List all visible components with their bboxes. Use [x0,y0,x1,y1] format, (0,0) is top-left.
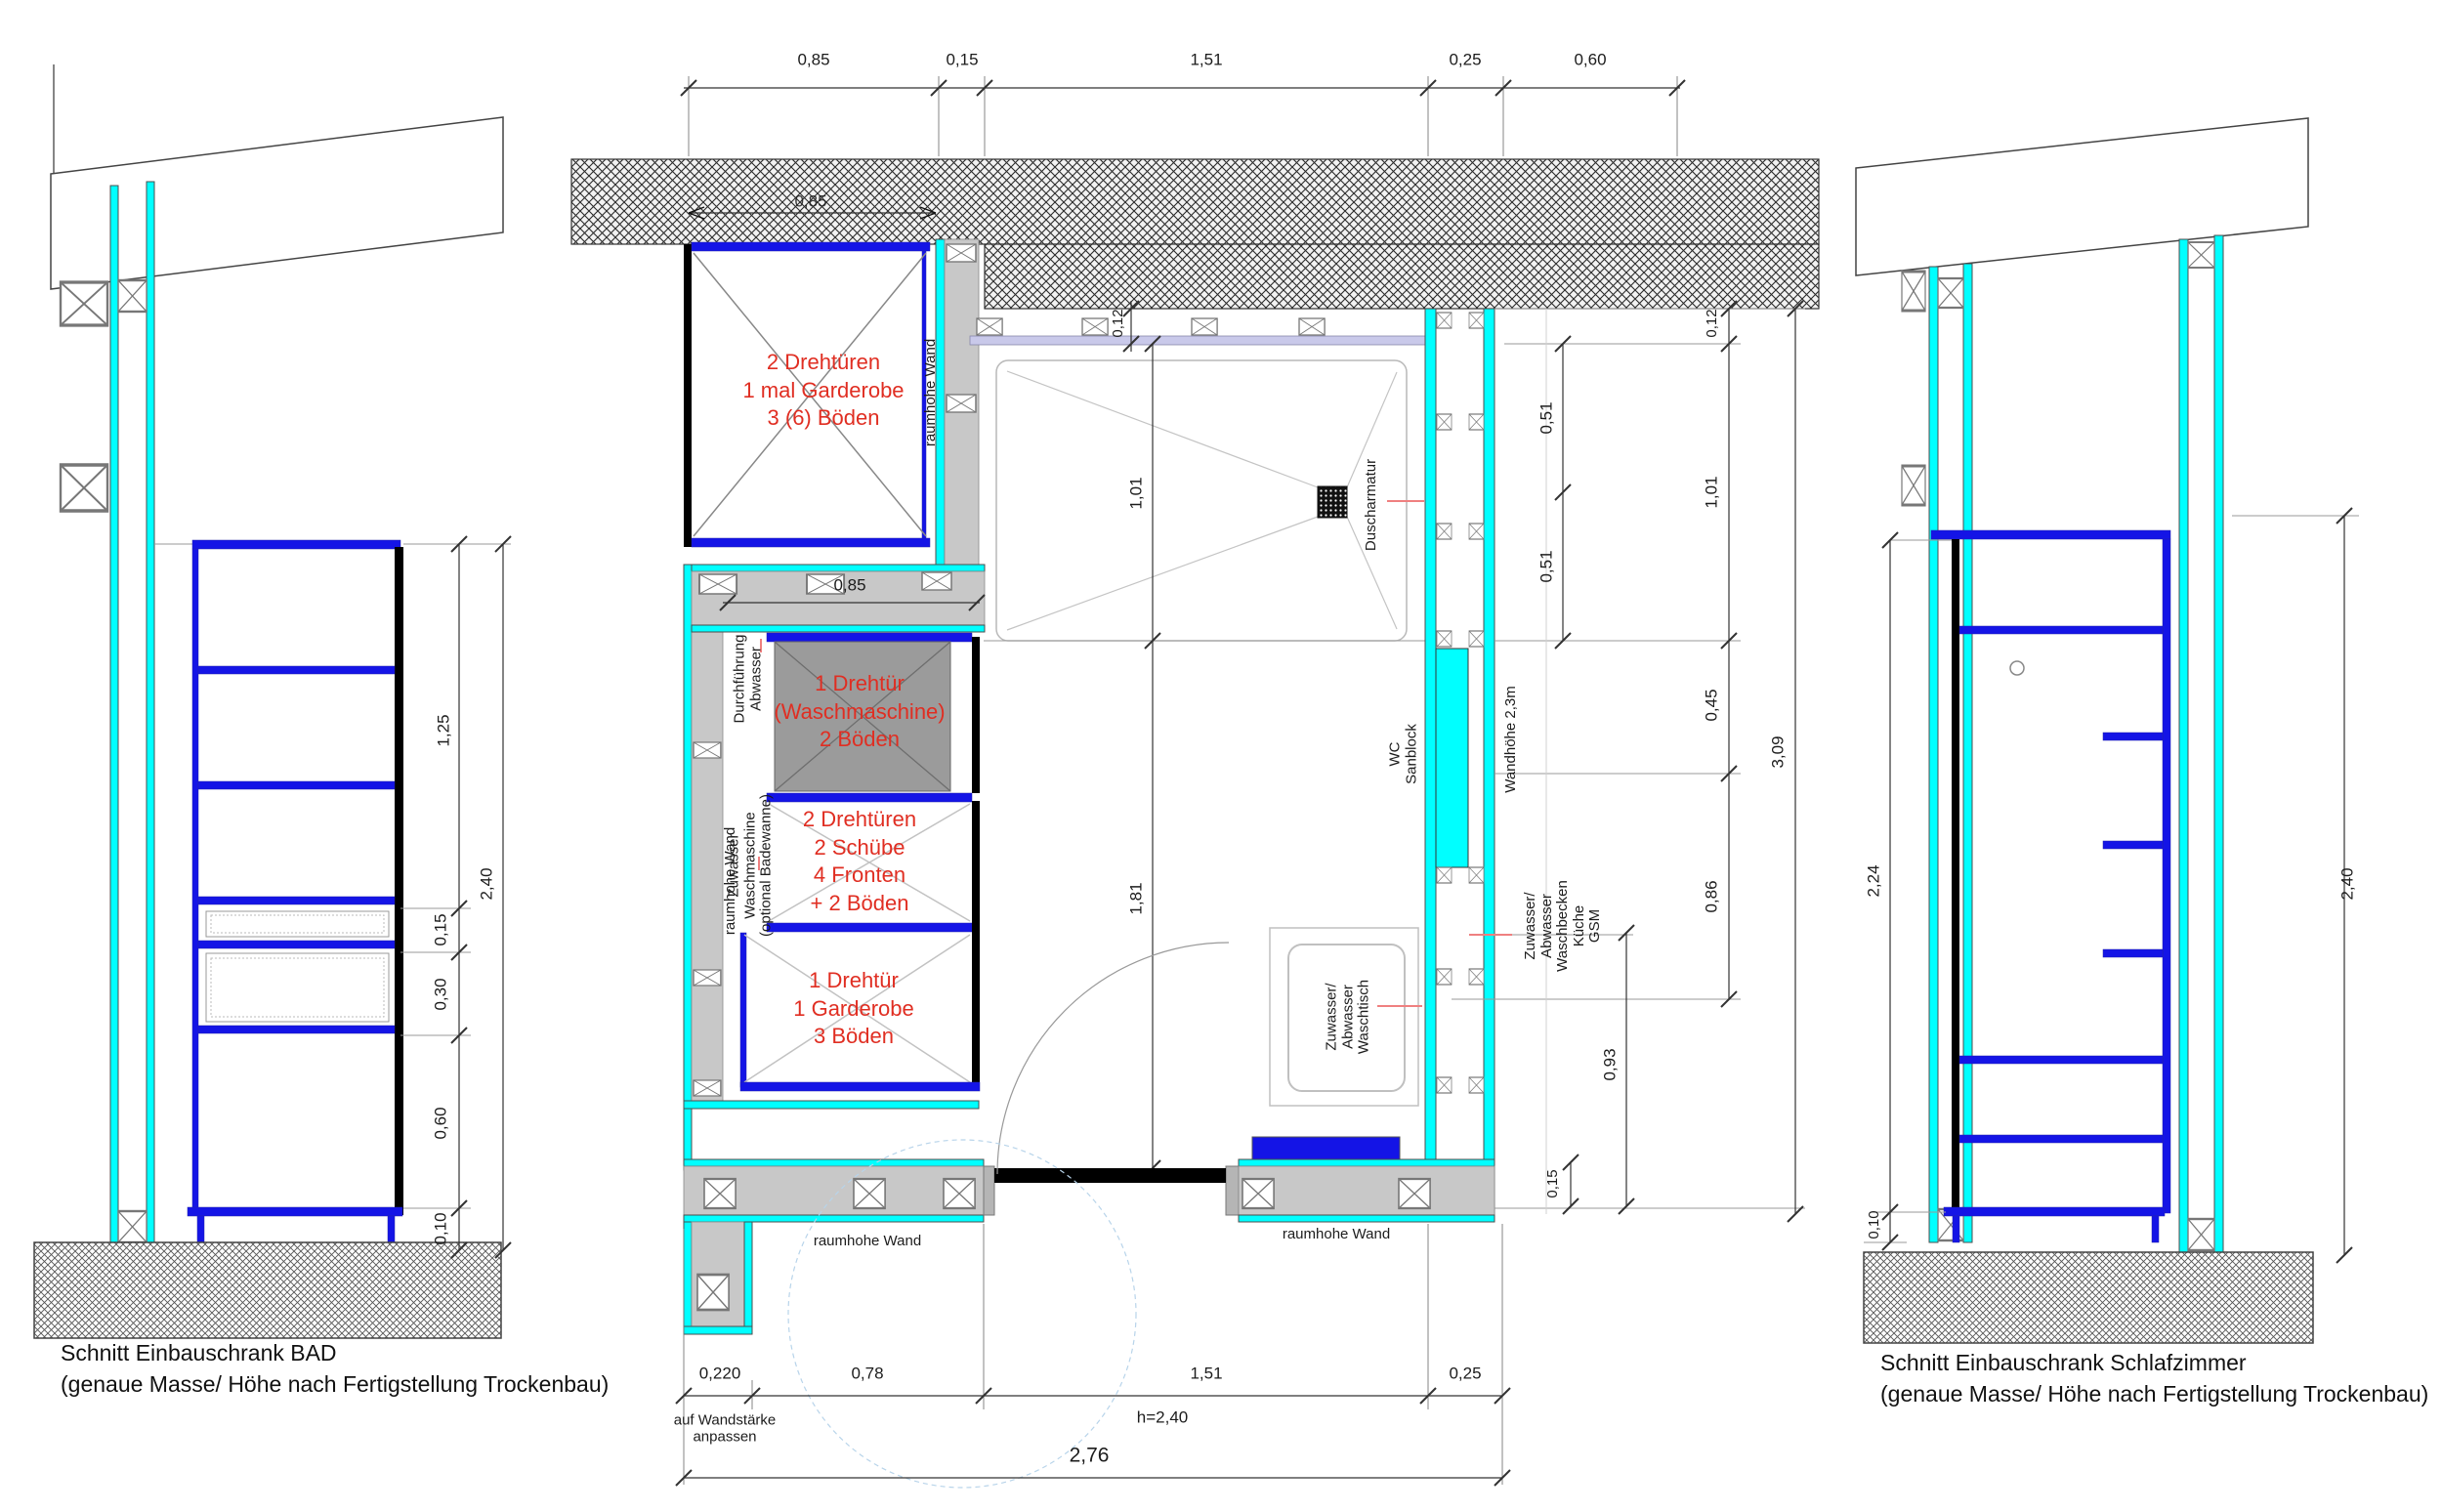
dim-label: 0,30 [433,978,451,1010]
dim-label: 0,10 [1867,1210,1883,1239]
dim-label: 1,81 [1128,882,1147,914]
annotation-line: 2 Böden [820,726,900,754]
dim-label: 0,15 [1545,1169,1562,1197]
dim-label: 0,60 [1574,52,1606,70]
dim-label: 0,12 [1111,309,1127,337]
annotation-line: 3 Böden [814,1023,894,1051]
wall-label-raumhohe: raumhohe Wand [814,1234,921,1250]
annotation-line: 2 Drehtüren [767,349,880,377]
note-wandstaerke: auf Wandstärke anpassen [674,1413,777,1446]
annotation-line: 1 Drehtür [815,670,905,698]
caption-bad: Schnitt Einbauschrank BAD [61,1340,337,1366]
right-section-graphics [1856,118,2359,1343]
dim-label: 0,51 [1538,550,1557,582]
dim-label: 0,12 [1705,309,1721,337]
label-line: Zuwasser/ [1523,892,1539,959]
closet-annotation-washer: 1 Drehtür (Waschmaschine) 2 Böden [774,670,945,754]
knob [2010,661,2024,675]
dim-label: 2,24 [1866,864,1884,897]
closet-annotation-wardrobe: 1 Drehtür 1 Garderobe 3 Böden [793,967,914,1051]
dim-label: 0,25 [1449,52,1481,70]
dim-label-total: 2,76 [1070,1444,1110,1466]
annotation-line: 2 Schübe [815,833,905,861]
dim-label: 0,93 [1602,1048,1621,1080]
dim-label: 0,78 [851,1365,883,1384]
wall-label-raumhohe: raumhohe Wand [923,339,940,446]
label-line: Abwasser [748,647,765,711]
door-swing-arc [997,943,1229,1174]
shower-drain [1318,486,1347,518]
roof-band [1856,118,2308,275]
wall-label-raumhohe: raumhohe Wand [1283,1227,1390,1243]
floor-hatch [34,1242,501,1338]
label-line: Zuwasser/ [1324,983,1340,1050]
door-leaf [994,1168,1226,1183]
label-line: Waschmaschine [742,812,759,918]
dim-label: 1,51 [1190,52,1222,70]
exterior-wall-hatch [985,244,1819,309]
dim-label: 0,85 [797,52,829,70]
label-line: Durchführung [733,635,749,724]
label-line: Waschtisch [1356,980,1372,1054]
top-dim-chain [681,76,1685,156]
label-wc-saniblock: WC Sanblock [1388,724,1420,784]
dim-label: 1,01 [1704,476,1722,508]
annotation-line: 2 Drehtüren [803,806,916,834]
label-durchfuehrung-abwasser: Durchführung Abwasser [733,635,765,724]
label-line: Zuwasser [726,833,742,897]
dim-label: 0,86 [1704,880,1722,912]
radiator [1252,1137,1400,1160]
architectural-drawing-sheet: 1,25 0,15 0,30 0,60 0,10 2,40 Schnitt Ei… [0,0,2442,1512]
annotation-line: 4 Fronten [814,861,905,890]
dim-label: 0,10 [433,1212,451,1244]
shower [970,318,1426,641]
annotation-line: 1 Drehtür [809,967,899,995]
label-wandhoehe: Wandhöhe 2,3m [1503,686,1520,793]
dim-label-hidden: 0,85 [794,193,826,212]
label-line: WC [1388,742,1405,767]
left-section-graphics [34,64,511,1338]
closet-annotation-dresser: 2 Drehtüren 2 Schübe 4 Fronten + 2 Böden [803,806,916,917]
label-line: (optional Badewanne) [758,794,775,937]
label-line: Abwasser [1340,985,1357,1049]
sanitary-wall [1425,309,1495,1222]
dim-label: 0,15 [433,913,451,945]
dim-label: 0,15 [946,52,978,70]
label-line: Abwasser [1538,894,1555,958]
dim-label: 1,25 [436,714,454,746]
label-line: Waschbecken [1555,880,1572,972]
label-zuwasser-kueche: Zuwasser/ Abwasser Waschbecken Küche GSM [1523,880,1604,972]
door-height-note: h=2,40 [1137,1409,1188,1428]
exterior-wall-hatch [571,159,1819,244]
bad-cabinet [188,540,403,1242]
dim-label: 3,09 [1770,735,1789,768]
dim-label: 0,45 [1704,689,1722,721]
dim-label: 1,51 [1190,1365,1222,1384]
wall-panel [147,182,154,1242]
annotation-line: 3 (6) Böden [768,404,880,433]
annotation-line: + 2 Böden [811,890,909,918]
note-line: auf Wandstärke [674,1413,777,1430]
label-line: Sanblock [1404,724,1420,784]
drawer [206,953,389,1022]
dim-label: 1,01 [1128,477,1147,509]
closet-annotation-nw: 2 Drehtüren 1 mal Garderobe 3 (6) Böden [742,349,904,433]
annotation-line: 1 Garderobe [793,995,914,1024]
south-wall [684,1159,1495,1334]
dim-label: 0,25 [1449,1365,1481,1384]
label-duscharmatur: Duscharmatur [1364,459,1380,551]
wall-panel [110,186,118,1242]
caption-schlafzimmer-sub: (genaue Masse/ Höhe nach Fertigstellung … [1880,1381,2428,1407]
floor-hatch [1864,1252,2313,1343]
caption-bad-sub: (genaue Masse/ Höhe nach Fertigstellung … [61,1371,609,1398]
annotation-line: 1 mal Garderobe [742,377,904,405]
note-line: anpassen [693,1429,756,1446]
dim-label: 2,40 [479,867,497,900]
annotation-line: (Waschmaschine) [774,698,945,727]
dim-label: 0,85 [833,577,865,596]
label-waschtisch: Zuwasser/ Abwasser Waschtisch [1324,980,1372,1054]
label-zuwasser-waschmaschine: Zuwasser Waschmaschine (optional Badewan… [726,794,775,937]
dim-label: 0,220 [699,1365,741,1384]
dim-label: 2,40 [2339,867,2358,900]
dim-label: 0,51 [1538,401,1557,434]
wc-saniblock [1436,649,1468,867]
dim-label: 0,60 [433,1107,451,1139]
drawing-linework [0,0,2442,1512]
label-line: GSM [1587,909,1604,943]
label-line: Küche [1571,905,1587,947]
floor-plan-graphics [571,76,1819,1488]
caption-schlafzimmer: Schnitt Einbauschrank Schlafzimmer [1880,1350,2247,1376]
